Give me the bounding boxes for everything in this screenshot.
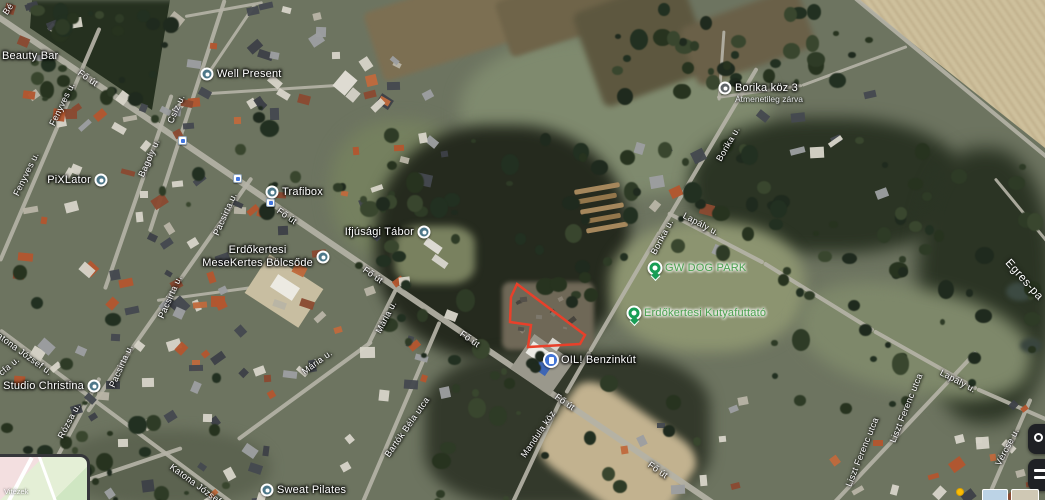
poi-dot bbox=[422, 230, 426, 234]
water-label: Egres-pa bbox=[1003, 257, 1045, 303]
menu-lines-icon bbox=[1034, 469, 1045, 472]
poi-label[interactable]: Sweat Pilates bbox=[277, 484, 346, 496]
photo-thumbnail[interactable] bbox=[1011, 489, 1039, 500]
street-label: Fő út bbox=[76, 68, 100, 89]
menu-lines-icon bbox=[1034, 476, 1045, 479]
street-label: Fő út bbox=[553, 392, 577, 413]
bus-glyph bbox=[236, 177, 240, 181]
map-control-button[interactable] bbox=[1028, 424, 1045, 454]
photo-thumbnail[interactable] bbox=[982, 489, 1008, 500]
pegman-icon[interactable] bbox=[956, 488, 964, 496]
trafibox-icon[interactable] bbox=[266, 186, 279, 199]
well-present-icon[interactable] bbox=[201, 68, 214, 81]
fuel-pump-glyph bbox=[549, 357, 555, 365]
street-label: Pacsirta u. bbox=[107, 343, 135, 389]
poi-dot bbox=[321, 255, 325, 259]
poi-label[interactable]: GW DOG PARK bbox=[665, 262, 746, 274]
erdokertesi-kutyafuttato-icon[interactable] bbox=[627, 306, 642, 321]
poi-label[interactable]: PiXLator bbox=[47, 174, 91, 186]
poi-dot bbox=[270, 190, 274, 194]
satellite-map[interactable]: Fő útFő útFő útFő útFő útFő útFenyves u.… bbox=[0, 0, 1045, 500]
street-label: Fő út bbox=[646, 460, 670, 481]
street-label: Mária u. bbox=[300, 348, 334, 377]
poi-sublabel: Átmenetileg zárva bbox=[735, 94, 803, 104]
street-label: Borika u. bbox=[649, 218, 676, 256]
poi-dot bbox=[632, 311, 637, 316]
bus-stop-icon[interactable] bbox=[178, 136, 187, 145]
poi-label[interactable]: Studio Christina bbox=[3, 380, 84, 392]
street-label: Bé bbox=[1, 1, 16, 16]
poi-dot bbox=[99, 178, 103, 182]
poi-label[interactable]: OIL! Benzinkút bbox=[561, 354, 636, 366]
mesekertes-bolcsode-icon[interactable] bbox=[317, 251, 330, 264]
studio-christina-icon[interactable] bbox=[88, 380, 101, 393]
pin-tail bbox=[650, 271, 660, 281]
street-label: Rózsa u. bbox=[56, 402, 83, 440]
poi-label[interactable]: Erdőkertesi Kutyafuttató bbox=[644, 307, 766, 319]
street-label: Mandula köz bbox=[519, 409, 558, 460]
street-label: Fő út bbox=[361, 265, 385, 286]
street-label: Bagoly u. bbox=[136, 138, 162, 179]
poi-label[interactable]: Trafibox bbox=[282, 186, 323, 198]
poi-label[interactable]: Ifjúsági Tábor bbox=[345, 226, 414, 238]
sweat-pilates-icon[interactable] bbox=[261, 484, 274, 497]
street-label: Fő út bbox=[458, 329, 482, 350]
pixlator-icon[interactable] bbox=[95, 174, 108, 187]
poi-label[interactable]: ErdőkertesiMeseKertes Bölcsőde bbox=[202, 244, 313, 270]
bus-stop-icon[interactable] bbox=[233, 174, 242, 183]
street-label: Liszt Ferenc utca bbox=[888, 372, 925, 444]
street-label: Fő út bbox=[275, 206, 299, 227]
ifjusagi-tabor-icon[interactable] bbox=[418, 226, 431, 239]
gw-dog-park-icon[interactable] bbox=[648, 261, 663, 276]
poi-label[interactable]: Beauty Bar bbox=[2, 50, 58, 62]
street-label: Liszt Ferenc utca bbox=[844, 416, 881, 488]
street-label: Csíz u. bbox=[165, 93, 186, 125]
borika-koz-3-icon[interactable] bbox=[719, 82, 732, 95]
compass-icon bbox=[1034, 433, 1043, 442]
street-label: Mária u. bbox=[373, 299, 398, 335]
bus-stop-icon[interactable] bbox=[266, 198, 275, 207]
street-label: cfa u. bbox=[0, 355, 21, 378]
street-label: Borika u. bbox=[714, 125, 742, 163]
street-label: Pacsirta u. bbox=[211, 191, 239, 237]
poi-dot bbox=[723, 86, 727, 90]
street-label: Pacsirta u. bbox=[156, 274, 184, 320]
poi-dot bbox=[92, 384, 96, 388]
street-label: Vércse u. bbox=[993, 427, 1021, 468]
street-label: Lapály u. bbox=[938, 367, 977, 394]
poi-dot bbox=[205, 72, 209, 76]
street-label: Lapály u. bbox=[681, 210, 720, 237]
inset-road bbox=[37, 454, 69, 500]
street-label: Bartók Béla utca bbox=[383, 395, 432, 459]
bus-glyph bbox=[269, 201, 273, 205]
street-label: Fenyves u. bbox=[11, 151, 41, 198]
pin-tail bbox=[629, 316, 639, 326]
map-labels: Fő útFő útFő útFő útFő útFő útFenyves u.… bbox=[0, 0, 1045, 500]
poi-dot bbox=[265, 488, 269, 492]
bus-glyph bbox=[181, 139, 185, 143]
poi-label[interactable]: Borika köz 3 bbox=[735, 82, 798, 94]
oil-benzinkut-icon[interactable] bbox=[543, 352, 559, 368]
inset-label: Vitézek bbox=[4, 487, 28, 496]
map-control-button[interactable] bbox=[1028, 459, 1045, 491]
street-label: Katona József u. bbox=[168, 462, 232, 500]
poi-dot bbox=[653, 266, 658, 271]
street-label: Fenyves u. bbox=[47, 81, 77, 128]
poi-label[interactable]: Well Present bbox=[217, 68, 282, 80]
